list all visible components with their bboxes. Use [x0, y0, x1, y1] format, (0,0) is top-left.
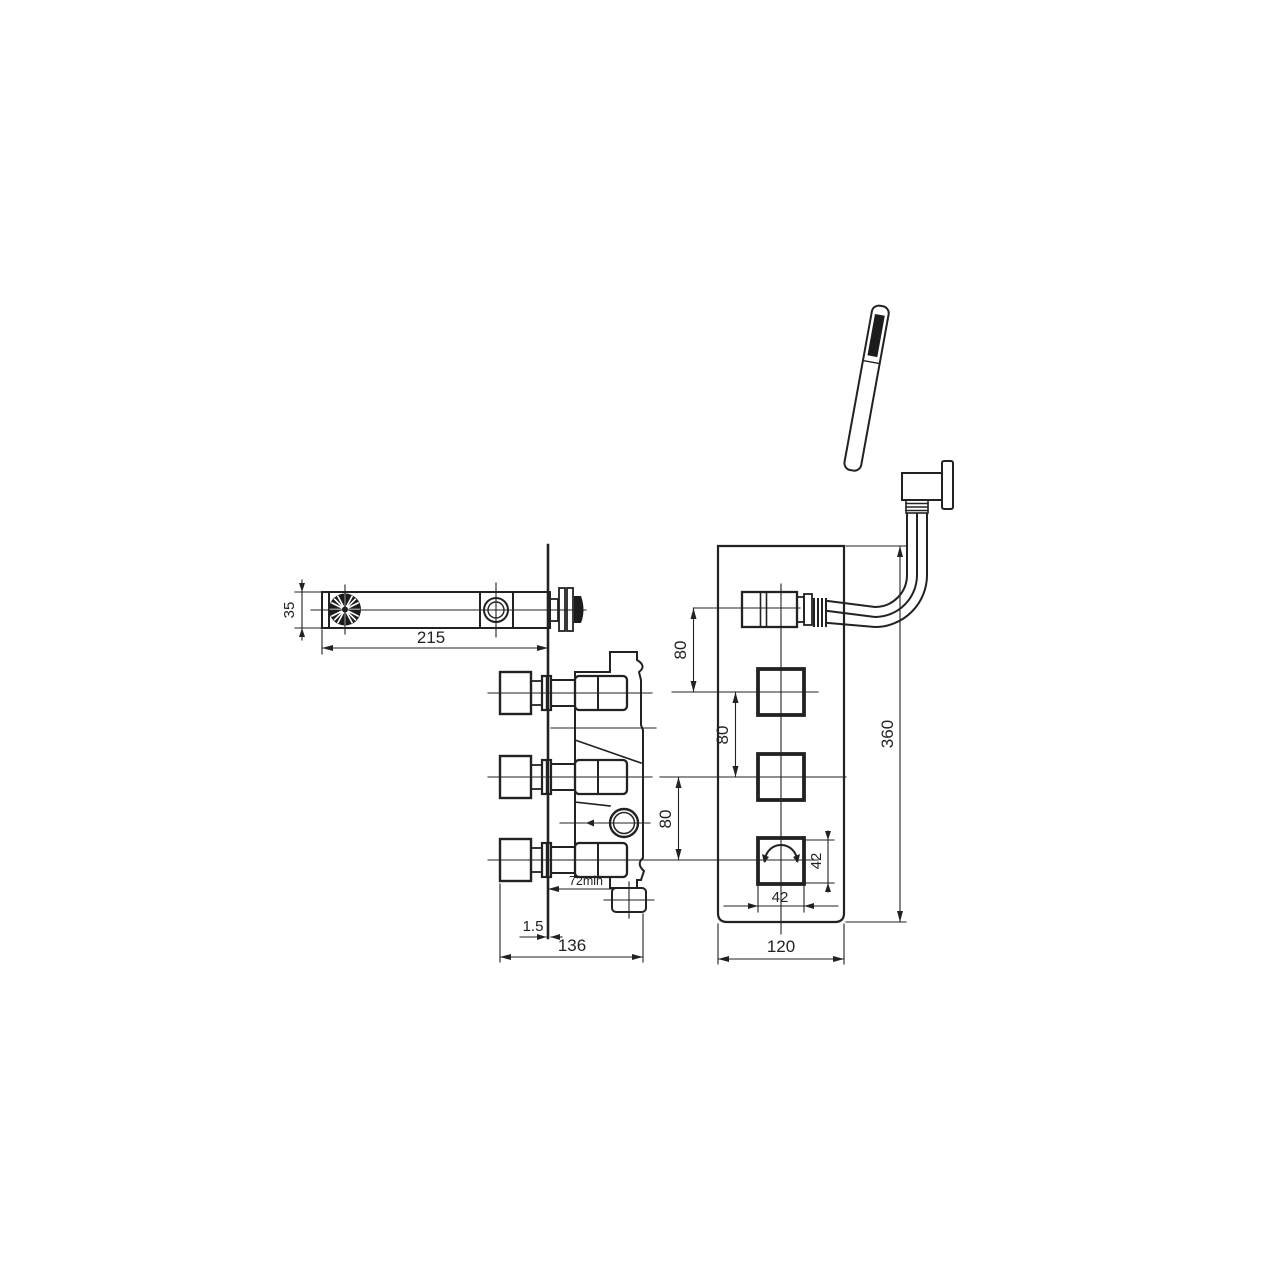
dim-label-80-mid: 80	[713, 726, 732, 745]
dim-spacing-mid	[733, 692, 739, 777]
dim-spacing-top	[691, 608, 697, 692]
valve-outlet-port	[560, 809, 650, 837]
dim-label-1-5: 1.5	[523, 918, 544, 935]
dim-label-35: 35	[281, 602, 298, 619]
dim-label-42-h: 42	[772, 889, 789, 906]
dim-label-80-top: 80	[671, 641, 690, 660]
dim-label-136: 136	[558, 936, 586, 955]
dim-label-360: 360	[878, 720, 897, 748]
dim-spacing-bottom	[676, 777, 682, 860]
hose-outlet	[694, 592, 826, 627]
dim-plate-height	[846, 546, 906, 922]
dim-label-42-v: 42	[808, 853, 825, 870]
dim-label-215: 215	[417, 628, 445, 647]
hand-shower	[828, 304, 953, 627]
valve-body-outline	[575, 652, 644, 888]
shower-valve-technical-drawing: 35 215 72min 1.5 136 80 80 80 360 42 42 …	[0, 0, 1280, 1280]
hose-nut	[906, 500, 928, 513]
shower-hose	[828, 514, 927, 627]
dim-label-72min: 72min	[569, 874, 603, 888]
dim-label-80-bottom: 80	[656, 810, 675, 829]
shower-wand	[843, 304, 890, 471]
dim-label-120: 120	[767, 937, 795, 956]
front-panel-view	[644, 546, 846, 934]
technical-drawing-page: 35 215 72min 1.5 136 80 80 80 360 42 42 …	[0, 0, 1280, 1280]
bath-spout-side-view	[311, 583, 586, 637]
